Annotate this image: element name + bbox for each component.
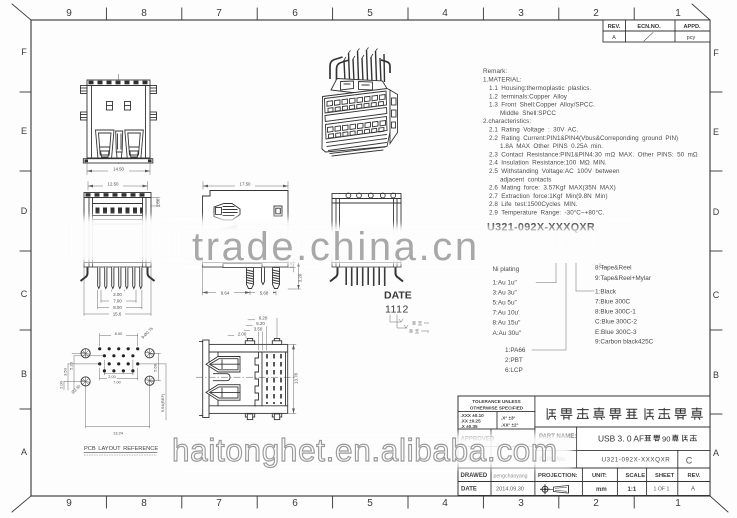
svg-text:C:Blue 300C-2: C:Blue 300C-2 bbox=[595, 319, 637, 326]
svg-text:13.78: 13.78 bbox=[294, 372, 299, 384]
svg-text:3: 3 bbox=[518, 498, 524, 509]
svg-text:REV.: REV. bbox=[608, 24, 621, 30]
svg-text:6: 6 bbox=[292, 498, 298, 509]
svg-text:E:Blue 300C-3: E:Blue 300C-3 bbox=[595, 329, 637, 336]
svg-text:1:Black: 1:Black bbox=[595, 288, 617, 295]
svg-text:haitonghet.en.alibaba.com: haitonghet.en.alibaba.com bbox=[172, 432, 558, 468]
svg-text:9: 9 bbox=[66, 498, 72, 509]
svg-text:5.20: 5.20 bbox=[69, 361, 74, 370]
svg-text:pcy: pcy bbox=[687, 35, 696, 41]
svg-text:1.8A MAX Other PINS 0.25: 1.8A MAX Other PINS 0.25A min. bbox=[500, 143, 603, 150]
svg-text:2.00: 2.00 bbox=[238, 331, 247, 336]
svg-text:1112: 1112 bbox=[385, 304, 409, 316]
svg-text:2.1 Rating Voltage : 30V: 2.1 Rating Voltage : 30V AC. bbox=[489, 127, 578, 134]
svg-text:2014.09.30: 2014.09.30 bbox=[496, 487, 524, 493]
svg-text:8: 8 bbox=[141, 498, 147, 509]
svg-text:3.50: 3.50 bbox=[254, 327, 263, 332]
svg-text:F: F bbox=[713, 48, 719, 58]
svg-text:5.20: 5.20 bbox=[256, 321, 265, 326]
svg-text:6.20: 6.20 bbox=[259, 316, 268, 321]
svg-text:4: 4 bbox=[442, 8, 448, 19]
svg-text:A: A bbox=[21, 447, 27, 457]
svg-text:3.50: 3.50 bbox=[63, 367, 68, 376]
svg-text:D: D bbox=[21, 206, 28, 216]
svg-text:B: B bbox=[21, 369, 27, 379]
svg-text:7:Au 10u': 7:Au 10u' bbox=[493, 310, 520, 317]
svg-text:Ni plating: Ni plating bbox=[493, 266, 520, 273]
svg-text:A: A bbox=[713, 448, 719, 458]
svg-text:A: A bbox=[612, 35, 616, 41]
svg-text:.X ±0.35: .X ±0.35 bbox=[461, 424, 479, 429]
svg-text:5.68: 5.68 bbox=[260, 290, 269, 295]
svg-text:1.MATERIAL:: 1.MATERIAL: bbox=[483, 77, 522, 84]
svg-text:9: 9 bbox=[66, 8, 72, 19]
svg-text:2.00: 2.00 bbox=[113, 292, 122, 297]
svg-text:.X° ±3°: .X° ±3° bbox=[501, 416, 516, 421]
svg-text:8:Blue 300C-1: 8:Blue 300C-1 bbox=[595, 309, 636, 316]
svg-text:2.8 Life test:1500Cycles MI: 2.8 Life test:1500Cycles MIN. bbox=[489, 201, 578, 208]
svg-text:DATE: DATE bbox=[384, 290, 412, 302]
svg-text:Remark:: Remark: bbox=[483, 68, 507, 75]
svg-text:SCALE: SCALE bbox=[626, 473, 646, 479]
svg-text:A:Au 30u": A:Au 30u" bbox=[493, 330, 522, 337]
svg-text:A: A bbox=[691, 487, 695, 493]
svg-text:8.00: 8.00 bbox=[115, 331, 124, 336]
svg-text:C: C bbox=[713, 290, 720, 300]
svg-text:12.50: 12.50 bbox=[108, 181, 120, 186]
svg-text:TOLERANCE UNLESS: TOLERANCE UNLESS bbox=[472, 399, 520, 404]
svg-text:9.64: 9.64 bbox=[221, 290, 230, 295]
svg-text:2.9 Temperature Range: -30°: 2.9 Temperature Range: -30°C~+80°C. bbox=[489, 209, 605, 217]
svg-text:7: 7 bbox=[216, 498, 222, 509]
svg-text:B: B bbox=[713, 370, 719, 380]
svg-text:90: 90 bbox=[662, 434, 670, 443]
svg-text:2.5 Withstanding Voltage:AC: 2.5 Withstanding Voltage:AC 100V between bbox=[489, 168, 620, 175]
svg-text:1 OF 1: 1 OF 1 bbox=[654, 487, 670, 493]
svg-text:C: C bbox=[21, 289, 28, 299]
svg-text:2.4 Insulation Resistance:10: 2.4 Insulation Resistance:100 MΩ MIN. bbox=[489, 160, 607, 167]
svg-text:2: 2 bbox=[593, 498, 599, 509]
svg-text:7:Blue 300C: 7:Blue 300C bbox=[595, 298, 631, 305]
svg-text:7: 7 bbox=[216, 8, 222, 19]
svg-text:8.00: 8.00 bbox=[113, 305, 122, 310]
svg-text:1: 1 bbox=[675, 498, 681, 509]
svg-text:2.3 Contact Resistance:PIN1&: 2.3 Contact Resistance:PIN1&PIN4:30 mΩ M… bbox=[489, 151, 698, 158]
svg-text:ECN.NO.: ECN.NO. bbox=[637, 24, 661, 30]
svg-text:6:LCP: 6:LCP bbox=[505, 367, 523, 374]
svg-text:9.64(REF): 9.64(REF) bbox=[160, 393, 165, 412]
svg-text:2.2 Rating Current:PIN1&PIN4: 2.2 Rating Current:PIN1&PIN4(Vbus&Correp… bbox=[489, 135, 678, 142]
svg-text:5: 5 bbox=[367, 498, 373, 509]
svg-text:mm: mm bbox=[596, 487, 607, 493]
svg-text:Middle Shell:SPCC: Middle Shell:SPCC bbox=[500, 110, 556, 117]
svg-text:9:Tape&Reel+Mylar: 9:Tape&Reel+Mylar bbox=[595, 275, 652, 282]
svg-text:8:Tape&Reel: 8:Tape&Reel bbox=[595, 265, 632, 272]
svg-text:trade.china.cn: trade.china.cn bbox=[192, 225, 480, 269]
svg-text:APPD.: APPD. bbox=[683, 24, 701, 30]
svg-text:13.24: 13.24 bbox=[113, 431, 124, 436]
svg-text:2.00: 2.00 bbox=[108, 375, 115, 379]
svg-text:adjacent contacts: adjacent contacts bbox=[500, 176, 551, 183]
svg-text:D: D bbox=[713, 207, 720, 217]
svg-text:.XX° ±2°: .XX° ±2° bbox=[501, 423, 519, 428]
svg-text:2:PBT: 2:PBT bbox=[505, 357, 523, 364]
svg-text:5: 5 bbox=[367, 8, 373, 19]
svg-text:1:Au 1u": 1:Au 1u" bbox=[493, 279, 517, 286]
svg-text:17.50: 17.50 bbox=[240, 181, 252, 186]
svg-text:5.68: 5.68 bbox=[153, 363, 158, 372]
svg-text:SHEET: SHEET bbox=[655, 473, 675, 479]
svg-text:1:PA66: 1:PA66 bbox=[505, 347, 526, 354]
svg-text:DATE: DATE bbox=[461, 487, 477, 493]
svg-text:F: F bbox=[21, 47, 27, 57]
svg-text:DRAWED: DRAWED bbox=[461, 473, 488, 479]
svg-text:5:Au 5u": 5:Au 5u" bbox=[493, 300, 517, 307]
svg-text:7.00: 7.00 bbox=[113, 380, 120, 384]
svg-text:C: C bbox=[686, 456, 693, 466]
svg-text:15.6: 15.6 bbox=[113, 312, 122, 317]
svg-text:2.00: 2.00 bbox=[59, 380, 64, 389]
svg-text:1: 1 bbox=[675, 8, 681, 19]
svg-text:1:1: 1:1 bbox=[628, 487, 637, 493]
svg-text:2: 2 bbox=[593, 8, 599, 19]
svg-text:1.3 Front Shell:Copper Allo: 1.3 Front Shell:Copper Alloy/SPCC. bbox=[489, 102, 595, 109]
svg-text:E: E bbox=[713, 127, 719, 137]
svg-text:PROJECTION:: PROJECTION: bbox=[538, 473, 578, 479]
svg-text:4: 4 bbox=[442, 498, 448, 509]
svg-text:USB 3. 0 AF: USB 3. 0 AF bbox=[598, 433, 644, 443]
svg-text:14.50: 14.50 bbox=[113, 166, 125, 171]
svg-text:8:Au 15u": 8:Au 15u" bbox=[493, 320, 521, 327]
svg-text:8: 8 bbox=[141, 8, 147, 19]
svg-text:9:Carbon black425C: 9:Carbon black425C bbox=[595, 338, 654, 345]
svg-text:OTHERWISE SPECIFIED: OTHERWISE SPECIFIED bbox=[470, 405, 524, 410]
svg-text:1.2 terminals:Copper Alloy: 1.2 terminals:Copper Alloy bbox=[489, 93, 568, 100]
svg-text:6: 6 bbox=[292, 8, 298, 19]
svg-text:UNIT:: UNIT: bbox=[592, 473, 607, 479]
svg-text:PCB LAYOUT REFERENCE: PCB LAYOUT REFERENCE bbox=[84, 446, 158, 452]
svg-text:3:Au 3u": 3:Au 3u" bbox=[493, 289, 517, 296]
svg-text:.XX ±0.25: .XX ±0.25 bbox=[461, 419, 482, 424]
svg-text:E: E bbox=[21, 126, 27, 136]
svg-text:REV.: REV. bbox=[688, 473, 701, 479]
svg-text:1.1 Housing:thermoplastic pl: 1.1 Housing:thermoplastic plastics. bbox=[489, 85, 591, 92]
svg-text:2.characteristics:: 2.characteristics: bbox=[483, 118, 531, 125]
svg-text:7.00: 7.00 bbox=[113, 299, 122, 304]
svg-text:3: 3 bbox=[518, 8, 524, 19]
svg-text:2.6 Mating force: 3.57Kgf: 2.6 Mating force: 3.57Kgf MAX(35N MAX) bbox=[489, 185, 616, 192]
svg-text:U321-092X-XXXQXR: U321-092X-XXXQXR bbox=[602, 457, 671, 464]
svg-text:1.60: 1.60 bbox=[156, 198, 161, 207]
svg-text:3.20: 3.20 bbox=[298, 273, 303, 282]
svg-text:2.7 Extraction force:1Kgf M: 2.7 Extraction force:1Kgf Min(9.8N Min) bbox=[489, 193, 608, 200]
svg-text:.XXX ±0.10: .XXX ±0.10 bbox=[461, 413, 485, 418]
svg-text:pengchaoyang: pengchaoyang bbox=[494, 473, 528, 479]
